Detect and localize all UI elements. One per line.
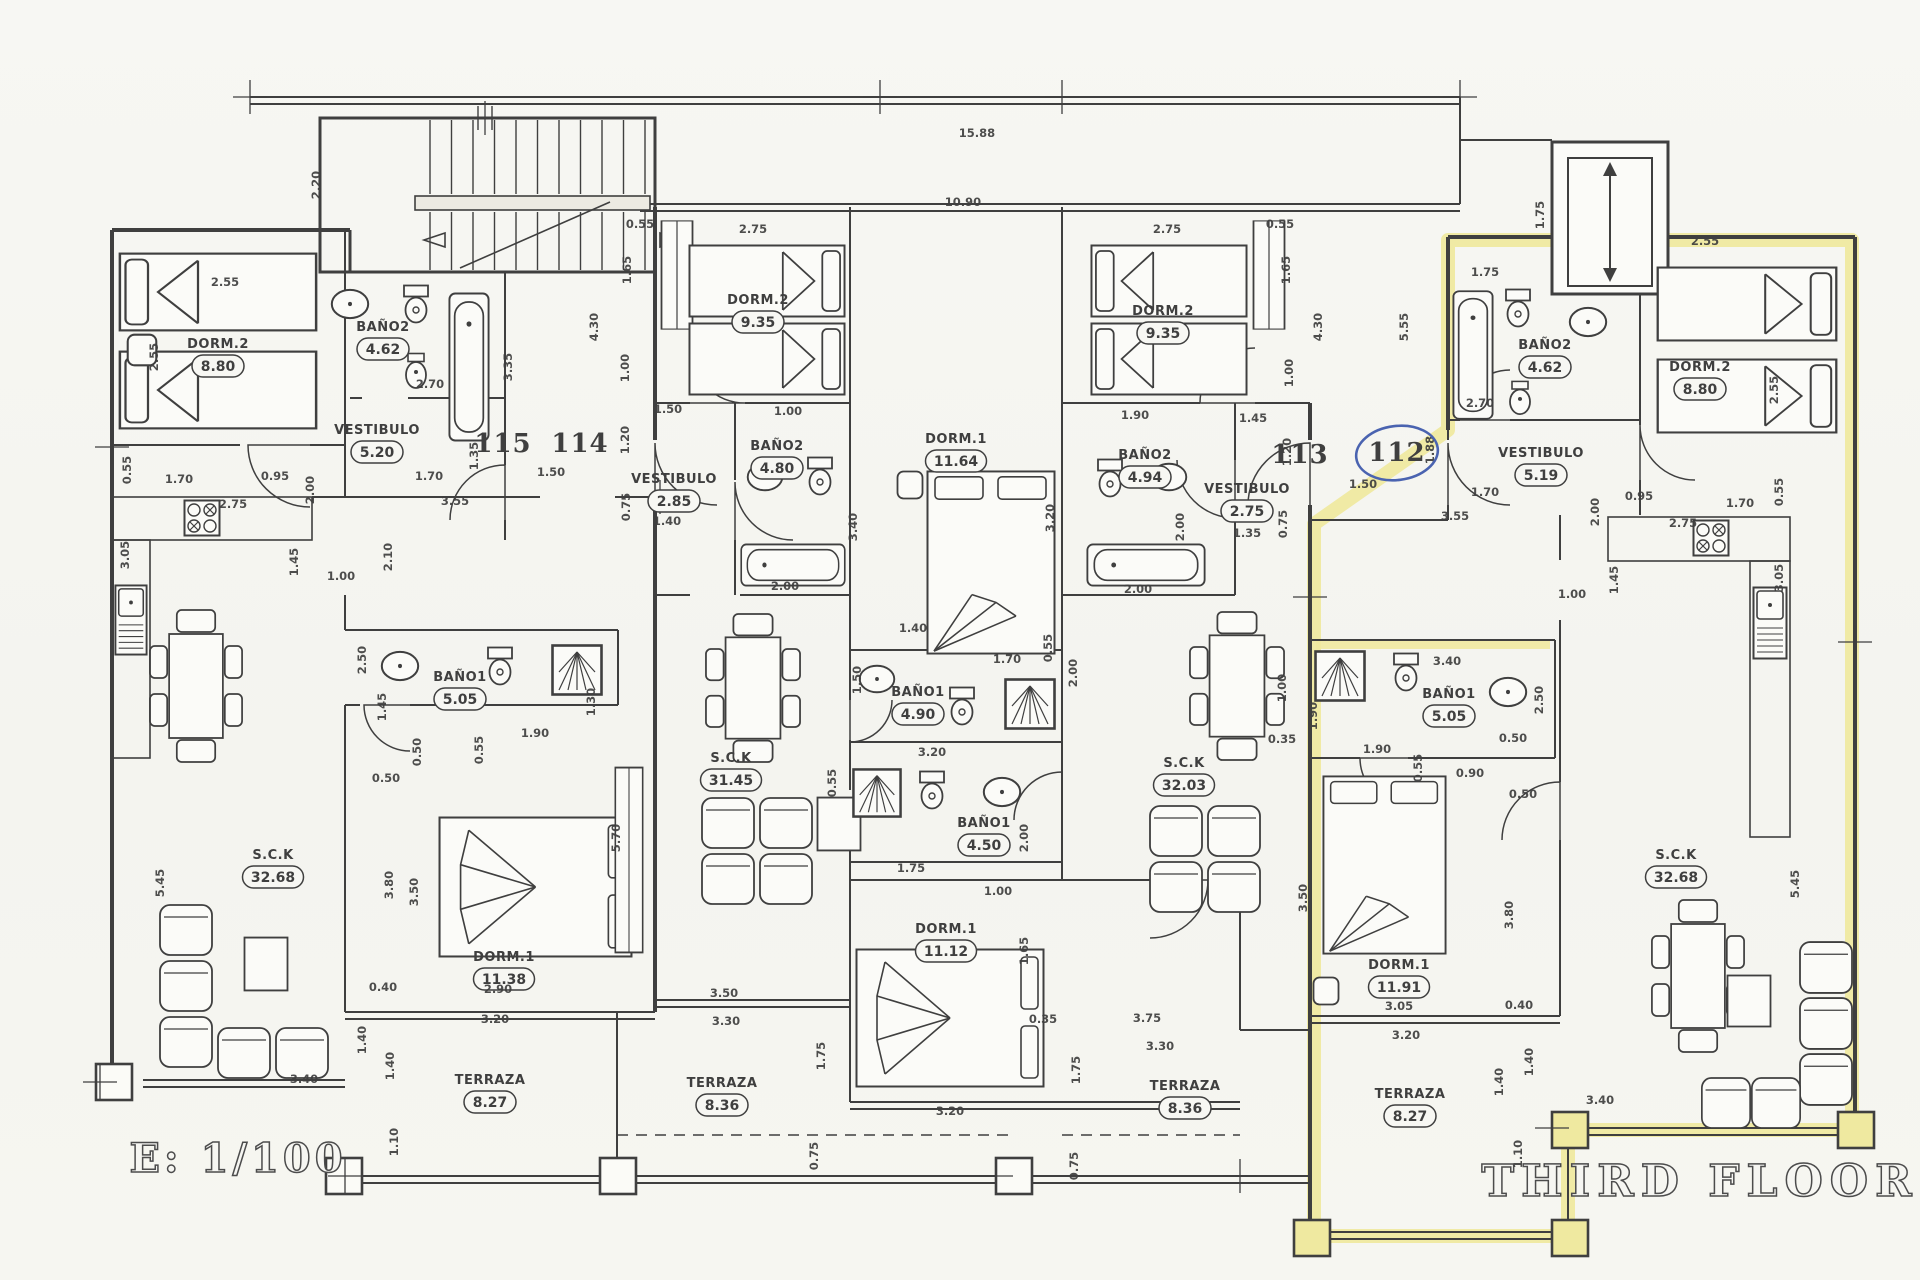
dimension-label: 2.75	[739, 222, 767, 236]
room-area: 4.62	[1528, 360, 1563, 376]
dimension-label: 1.90	[1363, 742, 1391, 756]
dimension-label: 1.00	[618, 354, 632, 382]
dimension-label: 2.50	[1532, 686, 1546, 714]
dimension-label: 0.55	[825, 769, 839, 797]
dimension-label: 2.00	[1588, 498, 1602, 526]
wardrobe-fixture	[662, 221, 693, 329]
room-name: DORM.2	[727, 293, 789, 308]
room-name: BAÑO2	[1518, 337, 1571, 353]
dimension-label: 1.00	[774, 404, 802, 418]
dimension-label: 1.75	[1533, 201, 1547, 229]
room-name: S.C.K	[1655, 848, 1697, 863]
dimension-label: 3.40	[1433, 654, 1461, 668]
dimension-label: 0.50	[1499, 731, 1527, 745]
stove-fixture	[185, 501, 220, 536]
dimension-label: 1.75	[1069, 1056, 1083, 1084]
sinkO-fixture	[382, 652, 418, 680]
dimension-label: 2.00	[1124, 582, 1152, 596]
dimension-label: 1.90	[521, 726, 549, 740]
dimension-label: 3.50	[1296, 884, 1310, 912]
dimension-label: 2.75	[1669, 516, 1697, 530]
seat-fixture	[1702, 1078, 1750, 1128]
seat-fixture	[276, 1028, 328, 1078]
dimension-label: 2.70	[416, 377, 444, 391]
dimension-label: 1.00	[984, 884, 1012, 898]
dimension-label: 3.40	[1586, 1093, 1614, 1107]
dimension-label: 1.45	[1607, 566, 1621, 594]
room-area: 2.75	[1230, 504, 1265, 520]
dimension-label: 0.35	[1268, 732, 1296, 746]
dimension-label: 3.55	[441, 494, 469, 508]
dimension-label: 1.50	[850, 666, 864, 694]
room-label: DORM.111.91	[1368, 958, 1430, 998]
room-area: 32.03	[1162, 778, 1206, 794]
room-area: 11.12	[924, 944, 968, 960]
seat-fixture	[218, 1028, 270, 1078]
page-title: THIRD FLOOR	[1481, 1156, 1918, 1207]
room-label: DORM.111.64	[925, 432, 987, 472]
dimension-label: 3.05	[118, 541, 132, 569]
ksink-fixture	[115, 585, 146, 654]
room-name: DORM.2	[1669, 360, 1731, 375]
sinkO-fixture	[1490, 678, 1526, 706]
dimension-label: 1.40	[355, 1026, 369, 1054]
room-label: BAÑO24.94	[1118, 447, 1171, 488]
elevator	[1552, 142, 1668, 294]
seat-fixture	[160, 961, 212, 1011]
room-name: TERRAZA	[1150, 1079, 1221, 1094]
room-name: S.C.K	[710, 751, 752, 766]
dimension-label: 0.55	[1266, 217, 1294, 231]
shower-fixture	[1006, 680, 1055, 729]
room-area: 8.36	[705, 1098, 740, 1114]
room-label: DORM.28.80	[187, 337, 249, 377]
dimension-label: 1.70	[1471, 485, 1499, 499]
seat-fixture	[702, 854, 754, 904]
floor-plan-svg: DORM.28.80BAÑO24.62VESTIBULO5.20BAÑO15.0…	[0, 0, 1920, 1280]
seat-fixture	[1150, 806, 1202, 856]
room-label: S.C.K32.68	[1646, 848, 1707, 888]
toilet-fixture	[488, 648, 512, 685]
dimension-label: 2.55	[211, 275, 239, 289]
apartment-number-112: 112	[1368, 438, 1425, 468]
dimension-label: 0.50	[1509, 787, 1537, 801]
room-area: 4.50	[967, 838, 1002, 854]
dimension-label: 0.75	[1276, 510, 1290, 538]
dimension-label: 5.70	[609, 824, 623, 852]
dimension-label: 0.40	[369, 980, 397, 994]
room-name: DORM.1	[925, 432, 987, 447]
room-area: 5.19	[1524, 468, 1559, 484]
dimension-label: 0.55	[472, 736, 486, 764]
dimension-label: 1.50	[654, 402, 682, 416]
dimension-label: 2.00	[771, 579, 799, 593]
dimension-label: 1.75	[1471, 265, 1499, 279]
room-name: VESTIBULO	[1204, 482, 1290, 497]
wardrobe-fixture	[615, 768, 642, 953]
dimension-label: 1.40	[1522, 1048, 1536, 1076]
bedR-fixture	[1658, 268, 1837, 341]
nightstand-fixture	[1314, 978, 1339, 1005]
floor-plan-page: DORM.28.80BAÑO24.62VESTIBULO5.20BAÑO15.0…	[0, 0, 1920, 1280]
toilet-fixture	[950, 688, 974, 725]
dimension-label: 3.40	[846, 513, 860, 541]
dimension-label: 1.00	[1275, 674, 1289, 702]
apartment-number-115: 115	[474, 429, 531, 459]
room-area: 9.35	[1146, 326, 1181, 342]
room-label: VESTIBULO2.85	[631, 472, 717, 512]
seat-fixture	[760, 854, 812, 904]
dimension-label: 3.30	[712, 1014, 740, 1028]
room-area: 8.36	[1168, 1101, 1203, 1117]
dimension-label: 0.55	[1411, 754, 1425, 782]
dimension-label: 1.70	[1726, 496, 1754, 510]
bedL-fixture	[120, 254, 316, 331]
shower-fixture	[553, 646, 602, 695]
room-label: DORM.29.35	[727, 293, 789, 333]
dimension-label: 0.75	[1067, 1152, 1081, 1180]
room-label: VESTIBULO5.20	[334, 423, 420, 463]
room-name: VESTIBULO	[631, 472, 717, 487]
bedR-fixture	[689, 324, 844, 395]
sinkO-fixture	[860, 666, 895, 692]
dimension-label: 1.90	[1121, 408, 1149, 422]
seat-fixture	[160, 905, 212, 955]
bedHD-fixture	[857, 950, 1044, 1087]
dimension-label: 3.30	[1146, 1039, 1174, 1053]
dimension-label: 2.00	[1017, 824, 1031, 852]
dimension-label: 0.95	[1625, 489, 1653, 503]
room-area: 11.91	[1377, 980, 1421, 996]
ksink-fixture	[1754, 588, 1787, 659]
room-name: BAÑO1	[891, 684, 944, 700]
dimension-label: 0.50	[410, 738, 424, 766]
dimension-label: 3.35	[501, 353, 515, 381]
seat-fixture	[1150, 862, 1202, 912]
dimension-label: 1.45	[375, 693, 389, 721]
room-label: TERRAZA8.36	[687, 1076, 758, 1116]
seat-fixture	[1208, 806, 1260, 856]
dimension-label: 0.55	[626, 217, 654, 231]
dimension-label: 1.30	[584, 688, 598, 716]
toilet-fixture	[1506, 290, 1530, 327]
staircase	[320, 106, 681, 272]
room-area: 8.27	[1393, 1109, 1428, 1125]
dimension-label: 5.45	[153, 869, 167, 897]
dimension-label: 3.80	[1502, 901, 1516, 929]
room-name: DORM.1	[915, 922, 977, 937]
dimension-label: 3.05	[1772, 564, 1786, 592]
dimension-label: 10.90	[945, 195, 981, 209]
shower-fixture	[1316, 652, 1365, 701]
room-area: 8.80	[201, 359, 236, 375]
seat-fixture	[760, 798, 812, 848]
dimension-label: 2.75	[219, 497, 247, 511]
room-area: 2.85	[657, 494, 692, 510]
seat-fixture	[160, 1017, 212, 1067]
room-name: BAÑO2	[356, 319, 409, 335]
tubH-fixture	[1087, 544, 1204, 585]
dimension-label: 1.75	[814, 1042, 828, 1070]
dimension-label: 2.55	[1691, 234, 1719, 248]
dimension-label: 1.70	[993, 652, 1021, 666]
room-name: TERRAZA	[455, 1073, 526, 1088]
room-label: BAÑO15.05	[433, 669, 486, 710]
room-label: BAÑO24.62	[356, 319, 409, 360]
room-name: VESTIBULO	[1498, 446, 1584, 461]
dimension-label: 2.00	[1173, 513, 1187, 541]
table6-fixture	[706, 614, 800, 762]
room-area: 8.27	[473, 1095, 508, 1111]
apartment-number-114: 114	[551, 429, 608, 459]
dimension-label: 1.00	[1558, 587, 1586, 601]
dimension-label: 3.05	[1385, 999, 1413, 1013]
bedVD-fixture	[928, 471, 1055, 653]
room-label: TERRAZA8.27	[455, 1073, 526, 1113]
room-label: DORM.28.80	[1669, 360, 1731, 400]
dimension-label: 1.45	[287, 548, 301, 576]
sinkO-fixture	[1570, 308, 1606, 336]
dimension-label: 2.00	[1066, 659, 1080, 687]
toilet-fixture	[808, 458, 832, 495]
room-label: DORM.29.35	[1132, 304, 1194, 344]
room-area: 5.20	[360, 445, 395, 461]
dimension-label: 0.55	[1041, 634, 1055, 662]
bidet-fixture	[1510, 381, 1530, 414]
dimension-label: 4.30	[1311, 313, 1325, 341]
dimension-label: 2.55	[147, 343, 161, 371]
room-area: 4.62	[366, 342, 401, 358]
dimension-label: 1.40	[383, 1052, 397, 1080]
seat-fixture	[702, 798, 754, 848]
room-name: TERRAZA	[1375, 1087, 1446, 1102]
dimension-label: 2.75	[1153, 222, 1181, 236]
dimension-label: 2.70	[1466, 396, 1494, 410]
room-name: BAÑO2	[750, 438, 803, 454]
room-name: TERRAZA	[687, 1076, 758, 1091]
toilet-fixture	[1394, 654, 1418, 691]
room-area: 8.80	[1683, 382, 1718, 398]
dimension-label: 0.75	[619, 493, 633, 521]
room-name: DORM.1	[1368, 958, 1430, 973]
dimension-label: 3.20	[936, 1104, 964, 1118]
dimension-label: 1.40	[653, 514, 681, 528]
room-name: DORM.1	[473, 950, 535, 965]
room-label: TERRAZA8.27	[1375, 1087, 1446, 1127]
dimension-label: 3.20	[918, 745, 946, 759]
room-area: 32.68	[251, 870, 295, 886]
dimension-label: 1.75	[897, 861, 925, 875]
dimension-label: 3.20	[1043, 504, 1057, 532]
dimension-label: 0.35	[1029, 1012, 1057, 1026]
dimension-label: 3.20	[481, 1012, 509, 1026]
coffee-fixture	[1728, 976, 1771, 1027]
dimension-label: 2.20	[309, 171, 323, 199]
dimension-label: 1.50	[1349, 477, 1377, 491]
dimension-label: 3.75	[1133, 1011, 1161, 1025]
dimension-label: 2.10	[381, 543, 395, 571]
seat-fixture	[1800, 998, 1852, 1049]
toilet-fixture	[404, 286, 428, 323]
dimension-label: 2.55	[1767, 376, 1781, 404]
dimension-label: 5.55	[1397, 313, 1411, 341]
room-name: BAÑO1	[957, 815, 1010, 831]
room-label: BAÑO14.90	[891, 684, 944, 725]
dimension-label: 2.90	[484, 982, 512, 996]
shower-fixture	[853, 769, 900, 816]
room-label: BAÑO15.05	[1422, 686, 1475, 727]
dimension-label: 1.90	[1306, 702, 1320, 730]
room-area: 5.05	[443, 692, 478, 708]
dimension-label: 3.50	[710, 986, 738, 1000]
seat-fixture	[1800, 942, 1852, 993]
dimension-label: 4.30	[587, 313, 601, 341]
dimension-label: 2.00	[303, 476, 317, 504]
room-label: S.C.K32.03	[1154, 756, 1215, 796]
sinkO-fixture	[984, 778, 1020, 806]
dimension-label: 1.20	[618, 426, 632, 454]
room-name: S.C.K	[252, 848, 294, 863]
room-label: BAÑO14.50	[957, 815, 1010, 856]
dimension-label: 1.70	[415, 469, 443, 483]
seat-fixture	[1752, 1078, 1800, 1128]
dimension-label: 1.40	[899, 621, 927, 635]
dimension-label: 0.55	[120, 456, 134, 484]
room-area: 32.68	[1654, 870, 1698, 886]
dimension-label: 3.40	[290, 1072, 318, 1086]
dimension-label: 1.65	[1279, 256, 1293, 284]
dimension-label: 0.40	[1505, 998, 1533, 1012]
seat-fixture	[1800, 1054, 1852, 1105]
stove-fixture	[1694, 521, 1729, 556]
toilet-fixture	[920, 772, 944, 809]
dimension-label: 2.50	[355, 646, 369, 674]
dimension-label: 1.10	[387, 1128, 401, 1156]
dimension-label: 3.80	[382, 871, 396, 899]
dimension-label: 1.65	[1017, 937, 1031, 965]
room-label: VESTIBULO5.19	[1498, 446, 1584, 486]
room-label: BAÑO24.62	[1518, 337, 1571, 378]
bedVD-fixture	[1323, 776, 1445, 953]
dimension-label: 1.40	[1492, 1068, 1506, 1096]
sinkO-fixture	[332, 290, 368, 318]
room-area: 11.64	[934, 454, 979, 470]
room-name: DORM.2	[1132, 304, 1194, 319]
room-area: 4.94	[1128, 470, 1163, 486]
room-area: 31.45	[709, 773, 753, 789]
dimension-label: 3.55	[1441, 509, 1469, 523]
room-name: VESTIBULO	[334, 423, 420, 438]
dimension-label: 5.45	[1788, 870, 1802, 898]
dimension-label: 3.50	[407, 878, 421, 906]
room-name: BAÑO2	[1118, 447, 1171, 463]
dimension-label: 0.50	[372, 771, 400, 785]
room-name: S.C.K	[1163, 756, 1205, 771]
nightstand-fixture	[898, 472, 923, 499]
dimension-label: 15.88	[959, 126, 995, 140]
room-name: BAÑO1	[433, 669, 486, 685]
dimension-label: 0.75	[807, 1142, 821, 1170]
room-label: DORM.111.12	[915, 922, 977, 962]
room-area: 4.90	[901, 707, 936, 723]
dimension-label: 1.70	[165, 472, 193, 486]
dimension-label: 1.50	[537, 465, 565, 479]
tubV-fixture	[449, 294, 488, 441]
dimension-label: 1.00	[327, 569, 355, 583]
dimension-label: 0.95	[261, 469, 289, 483]
bedHD-fixture	[440, 818, 632, 957]
dimension-label: 1.65	[620, 256, 634, 284]
dimension-label: 0.90	[1456, 766, 1484, 780]
scale-label: E: 1/100	[129, 1135, 346, 1182]
room-area: 9.35	[741, 315, 776, 331]
room-area: 5.05	[1432, 709, 1467, 725]
coffee-fixture	[245, 938, 288, 991]
room-name: BAÑO1	[1422, 686, 1475, 702]
room-label: TERRAZA8.36	[1150, 1079, 1221, 1119]
dimension-label: 1.35	[1233, 526, 1261, 540]
dimension-label: 0.55	[1772, 478, 1786, 506]
dimension-label: 1.45	[1239, 411, 1267, 425]
apartment-number-113: 113	[1271, 440, 1328, 470]
room-name: DORM.2	[187, 337, 249, 352]
room-label: BAÑO24.80	[750, 438, 803, 479]
dimension-label: 1.00	[1282, 359, 1296, 387]
dimension-label: 3.20	[1392, 1028, 1420, 1042]
seat-fixture	[1208, 862, 1260, 912]
room-label: S.C.K32.68	[243, 848, 304, 888]
table6-fixture	[150, 610, 242, 762]
room-area: 4.80	[760, 461, 795, 477]
